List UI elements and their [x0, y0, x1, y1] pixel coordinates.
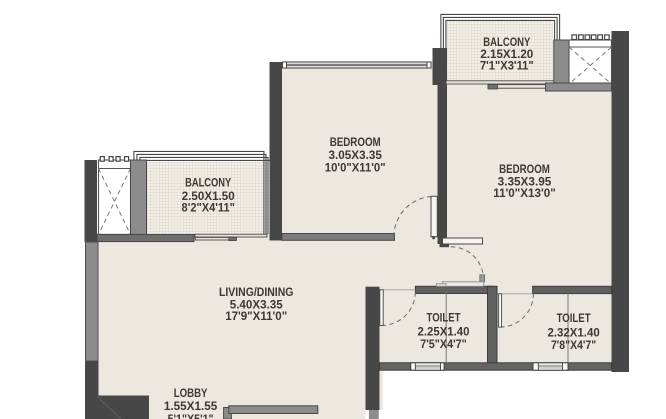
svg-text:10'0"X11'0": 10'0"X11'0"	[325, 160, 386, 174]
svg-text:TOILET: TOILET	[557, 311, 592, 325]
svg-text:11'0"X13'0": 11'0"X13'0"	[493, 186, 556, 200]
svg-text:7'8"X4'7": 7'8"X4'7"	[551, 338, 596, 352]
svg-text:BALCONY: BALCONY	[185, 176, 231, 190]
svg-text:1.55X1.55: 1.55X1.55	[164, 399, 218, 413]
svg-text:8'2"X4'11": 8'2"X4'11"	[182, 201, 235, 215]
svg-text:5'1"X5'1": 5'1"X5'1"	[168, 412, 214, 419]
svg-text:7'1"X3'11": 7'1"X3'11"	[480, 58, 534, 72]
svg-text:TOILET: TOILET	[427, 311, 462, 325]
svg-text:7'5"X4'7": 7'5"X4'7"	[420, 337, 467, 351]
svg-text:17'9"X11'0": 17'9"X11'0"	[225, 309, 287, 323]
